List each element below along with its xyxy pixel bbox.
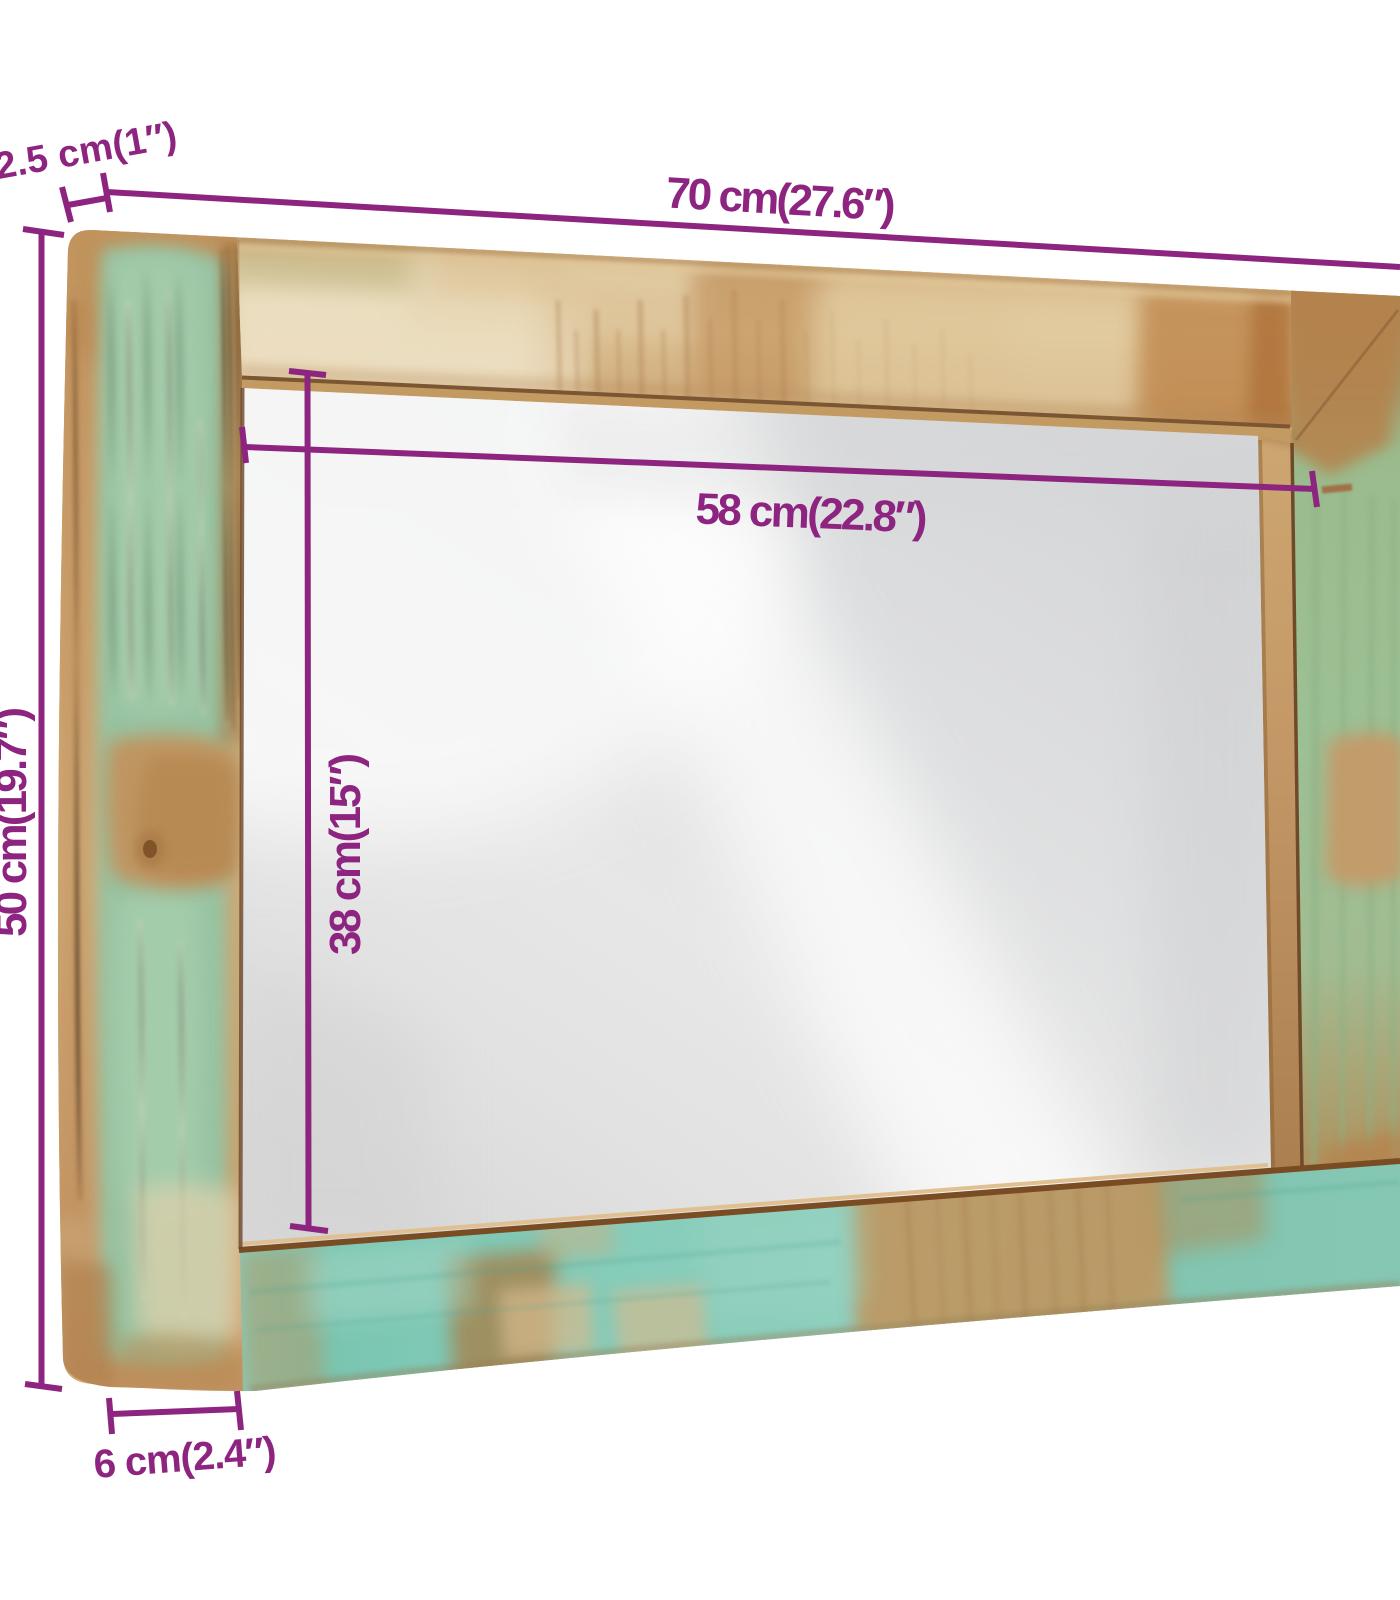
svg-text:58 cm(22.8″): 58 cm(22.8″) [695,484,929,542]
svg-text:38 cm(15″): 38 cm(15″) [321,753,370,955]
svg-text:50 cm(19.7″): 50 cm(19.7″) [0,707,36,937]
